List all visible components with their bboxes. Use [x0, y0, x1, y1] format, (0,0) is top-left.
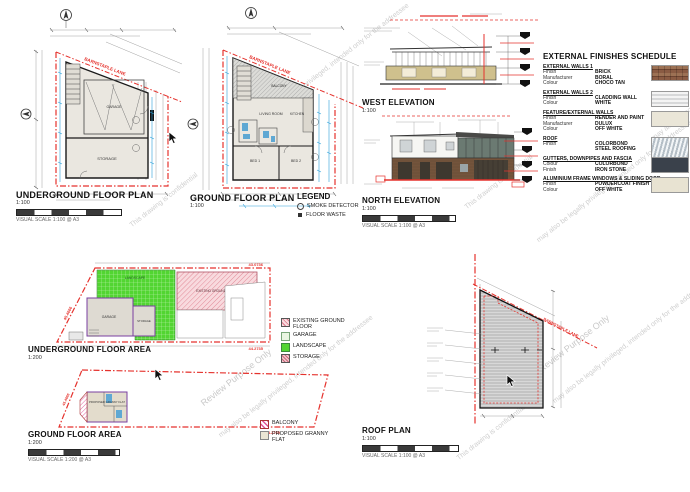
field-label: Finish: [543, 168, 595, 174]
legend-item: GARAGE: [281, 332, 347, 341]
drawing-title: ROOF PLAN: [362, 426, 459, 436]
schedule-item: GUTTERS, DOWNPIPES AND FASCIA ColourCOLO…: [543, 156, 689, 173]
landscape-swatch: [281, 343, 290, 352]
legend-item: FLOOR WASTE: [297, 212, 361, 218]
north-arrow-icon: [61, 10, 72, 29]
cursor-icon: [506, 374, 516, 388]
field-label: Colour: [543, 101, 595, 107]
garage-area-label: GARAGE: [102, 315, 117, 319]
drawing-scale: 1:100: [16, 200, 153, 206]
field-value: OFF WHITE: [595, 127, 623, 133]
plan-legend: LEGEND SMOKE DETECTOR FLOOR WASTE: [297, 192, 361, 220]
legend-item: EXISTING GROUND FLOOR: [281, 318, 347, 330]
schedule-item: ROOF FinishCOLORBOND STEEL ROOFING: [543, 136, 689, 153]
proposed-granny-flat-swatch: [260, 431, 269, 440]
ground-plan-titleblock: GROUND FLOOR PLAN 1:100: [190, 193, 294, 209]
field-label: Colour: [543, 188, 595, 194]
external-finishes-schedule: EXTERNAL FINISHES SCHEDULE EXTERNAL WALL…: [543, 52, 689, 196]
drawing-title: WEST ELEVATION: [362, 98, 435, 108]
scale-bar: [28, 449, 120, 456]
roof-plan-titleblock: ROOF PLAN 1:100 VISUAL SCALE 1:100 @ A3: [362, 426, 459, 459]
cursor-icon: [154, 368, 164, 382]
legend-item-label: LANDSCAPE: [293, 343, 326, 349]
drawing-title: GROUND FLOOR AREA: [28, 430, 122, 440]
garage-swatch: [281, 332, 290, 341]
north-elevation-drawing: [362, 110, 540, 198]
legend-item-label: FLOOR WASTE: [306, 212, 346, 218]
smoke-detector-icon: [297, 203, 304, 210]
field-value: WHITE: [595, 101, 611, 107]
street-label: BARNSTAPLE LANE: [543, 316, 580, 338]
scale-caption: VISUAL SCALE 1:100 @ A3: [16, 218, 153, 223]
cursor-icon: [168, 131, 178, 145]
schedule-item: EXTERNAL WALLS 1 FinishBRICK Manufacture…: [543, 64, 689, 87]
drawing-scale: 1:100: [190, 203, 294, 209]
powdercoat-swatch: [651, 177, 689, 193]
area-legend: EXISTING GROUND FLOOR GARAGE LANDSCAPE S…: [281, 318, 347, 365]
scale-bar: [362, 215, 456, 222]
bed2-label: BED 2: [291, 159, 301, 163]
legend-item: BALCONY: [260, 420, 340, 429]
field-value: CHOCO TAN: [595, 81, 625, 87]
legend-item: LANDSCAPE: [281, 343, 347, 352]
drawing-title: NORTH ELEVATION: [362, 196, 456, 206]
legend-item-label: GARAGE: [293, 332, 317, 338]
rl-level-markers: [522, 128, 532, 183]
legend-item-label: PROPOSED GRANNY FLAT: [272, 431, 340, 443]
rl-level-markers: [520, 32, 530, 87]
landscape-label: LANDSCAPE: [125, 276, 146, 280]
existing-ground-floor-swatch: [281, 318, 290, 327]
kitchen-label: KITCHEN: [290, 112, 305, 116]
north-elevation-titleblock: NORTH ELEVATION 1:100 VISUAL SCALE 1:100…: [362, 196, 456, 229]
floor-waste-icon: [298, 213, 302, 217]
field-value: COLORBOND STEEL ROOFING: [595, 142, 643, 153]
legend-item: SMOKE DETECTOR: [297, 203, 361, 210]
schedule-item: ALUMINIUM FRAME WINDOWS & SLIDING DOOR F…: [543, 176, 689, 193]
storage-area-label: STORAGE: [137, 319, 151, 323]
living-room-label: LIVING ROOM: [259, 112, 282, 116]
scale-bar: [16, 209, 122, 216]
garage-room-label: GARAGE: [107, 105, 123, 109]
roof-plan-drawing: BARNSTAPLE LANE: [425, 250, 630, 430]
scale-caption: VISUAL SCALE 1:200 @ A3: [28, 458, 122, 463]
underground-plan-titleblock: UNDERGROUND FLOOR PLAN 1:100 VISUAL SCAL…: [16, 190, 153, 223]
top-dimension: 43.0736: [249, 262, 264, 267]
bottom-dimension: 44.2735: [249, 346, 264, 351]
field-label: Colour: [543, 127, 595, 133]
legend-item-label: STORAGE: [293, 354, 320, 360]
field-label: Finish: [543, 142, 595, 153]
underground-floor-area-drawing: LANDSCAPE GARAGE STORAGE EXISTING GROUND…: [25, 258, 285, 350]
drawing-scale: 1:100: [362, 436, 459, 442]
render-swatch: [651, 111, 689, 127]
scale-caption: VISUAL SCALE 1:100 @ A3: [362, 454, 459, 459]
cladding-swatch: [651, 91, 689, 107]
legend-item: PROPOSED GRANNY FLAT: [260, 431, 340, 443]
schedule-item: EXTERNAL WALLS 2 FinishCLADDING WALL Col…: [543, 90, 689, 107]
drawing-scale: 1:100: [362, 206, 456, 212]
north-arrow-icon: [246, 8, 257, 19]
ground-area-titleblock: GROUND FLOOR AREA 1:200 VISUAL SCALE 1:2…: [28, 430, 122, 463]
drawing-title: UNDERGROUND FLOOR PLAN: [16, 190, 153, 200]
west-arrow-icon: [21, 109, 31, 119]
drawing-title: UNDERGROUND FLOOR AREA: [28, 345, 151, 355]
underground-area-titleblock: UNDERGROUND FLOOR AREA 1:200: [28, 345, 151, 361]
ironstone-swatch: [651, 157, 689, 173]
scale-bar: [362, 445, 459, 452]
legend-title: LEGEND: [297, 192, 361, 201]
area-legend: BALCONY PROPOSED GRANNY FLAT: [260, 420, 340, 445]
balcony-swatch: [260, 420, 269, 429]
field-value: IRON STONE: [595, 168, 626, 174]
drawing-title: GROUND FLOOR PLAN: [190, 193, 294, 203]
schedule-item: FEATURE/EXTERNAL WALLS FinishRENDER AND …: [543, 110, 689, 133]
brick-swatch: [651, 65, 689, 81]
scale-caption: VISUAL SCALE 1:100 @ A3: [362, 224, 456, 229]
side-dimension: 45.4666: [62, 393, 71, 407]
storage-room-label: STORAGE: [97, 156, 117, 161]
field-label: Colour: [543, 81, 595, 87]
balcony-label: BALCONY: [271, 84, 287, 88]
west-elevation-drawing: [362, 6, 540, 104]
legend-item-label: SMOKE DETECTOR: [307, 203, 359, 209]
west-arrow-icon: [188, 119, 198, 129]
bed1-label: BED 1: [250, 159, 260, 163]
legend-item-label: EXISTING GROUND FLOOR: [293, 318, 347, 330]
field-value: OFF WHITE: [595, 188, 623, 194]
schedule-title: EXTERNAL FINISHES SCHEDULE: [543, 52, 689, 61]
proposed-granny-flat-label: PROPOSED GRANNY FLAT: [89, 400, 125, 404]
drawing-scale: 1:200: [28, 440, 122, 446]
legend-item-label: BALCONY: [272, 420, 298, 426]
drawing-scale: 1:200: [28, 355, 151, 361]
